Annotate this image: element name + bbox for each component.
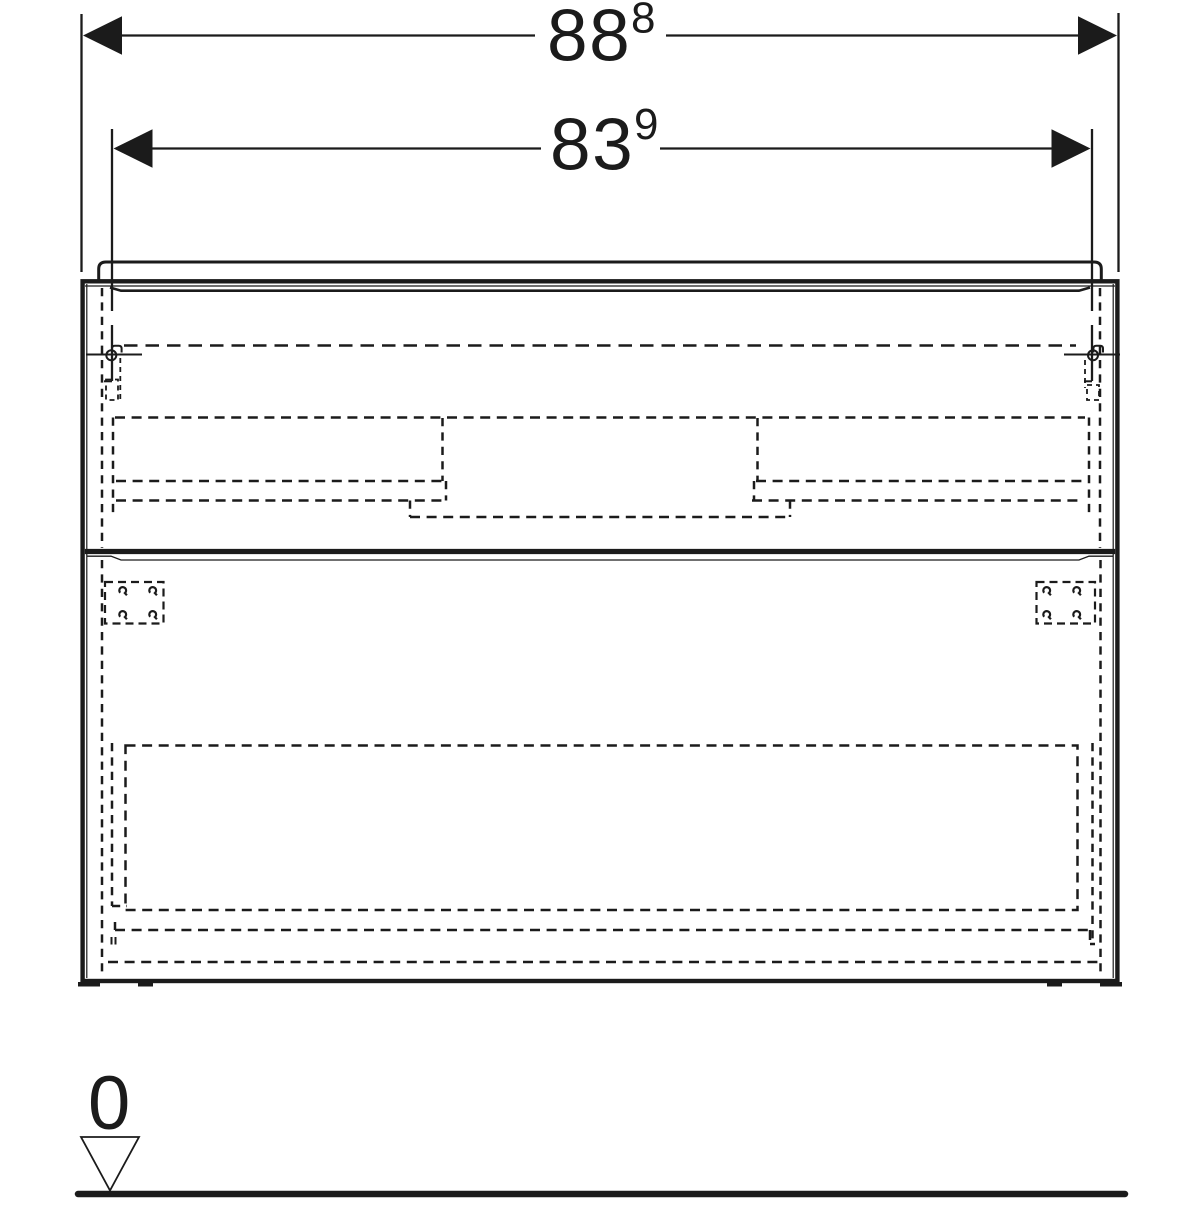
svg-text:83: 83 [550, 105, 634, 186]
svg-text:9: 9 [634, 100, 658, 149]
svg-text:8: 8 [631, 0, 655, 43]
svg-text:0: 0 [88, 1061, 130, 1146]
svg-text:88: 88 [547, 0, 631, 77]
